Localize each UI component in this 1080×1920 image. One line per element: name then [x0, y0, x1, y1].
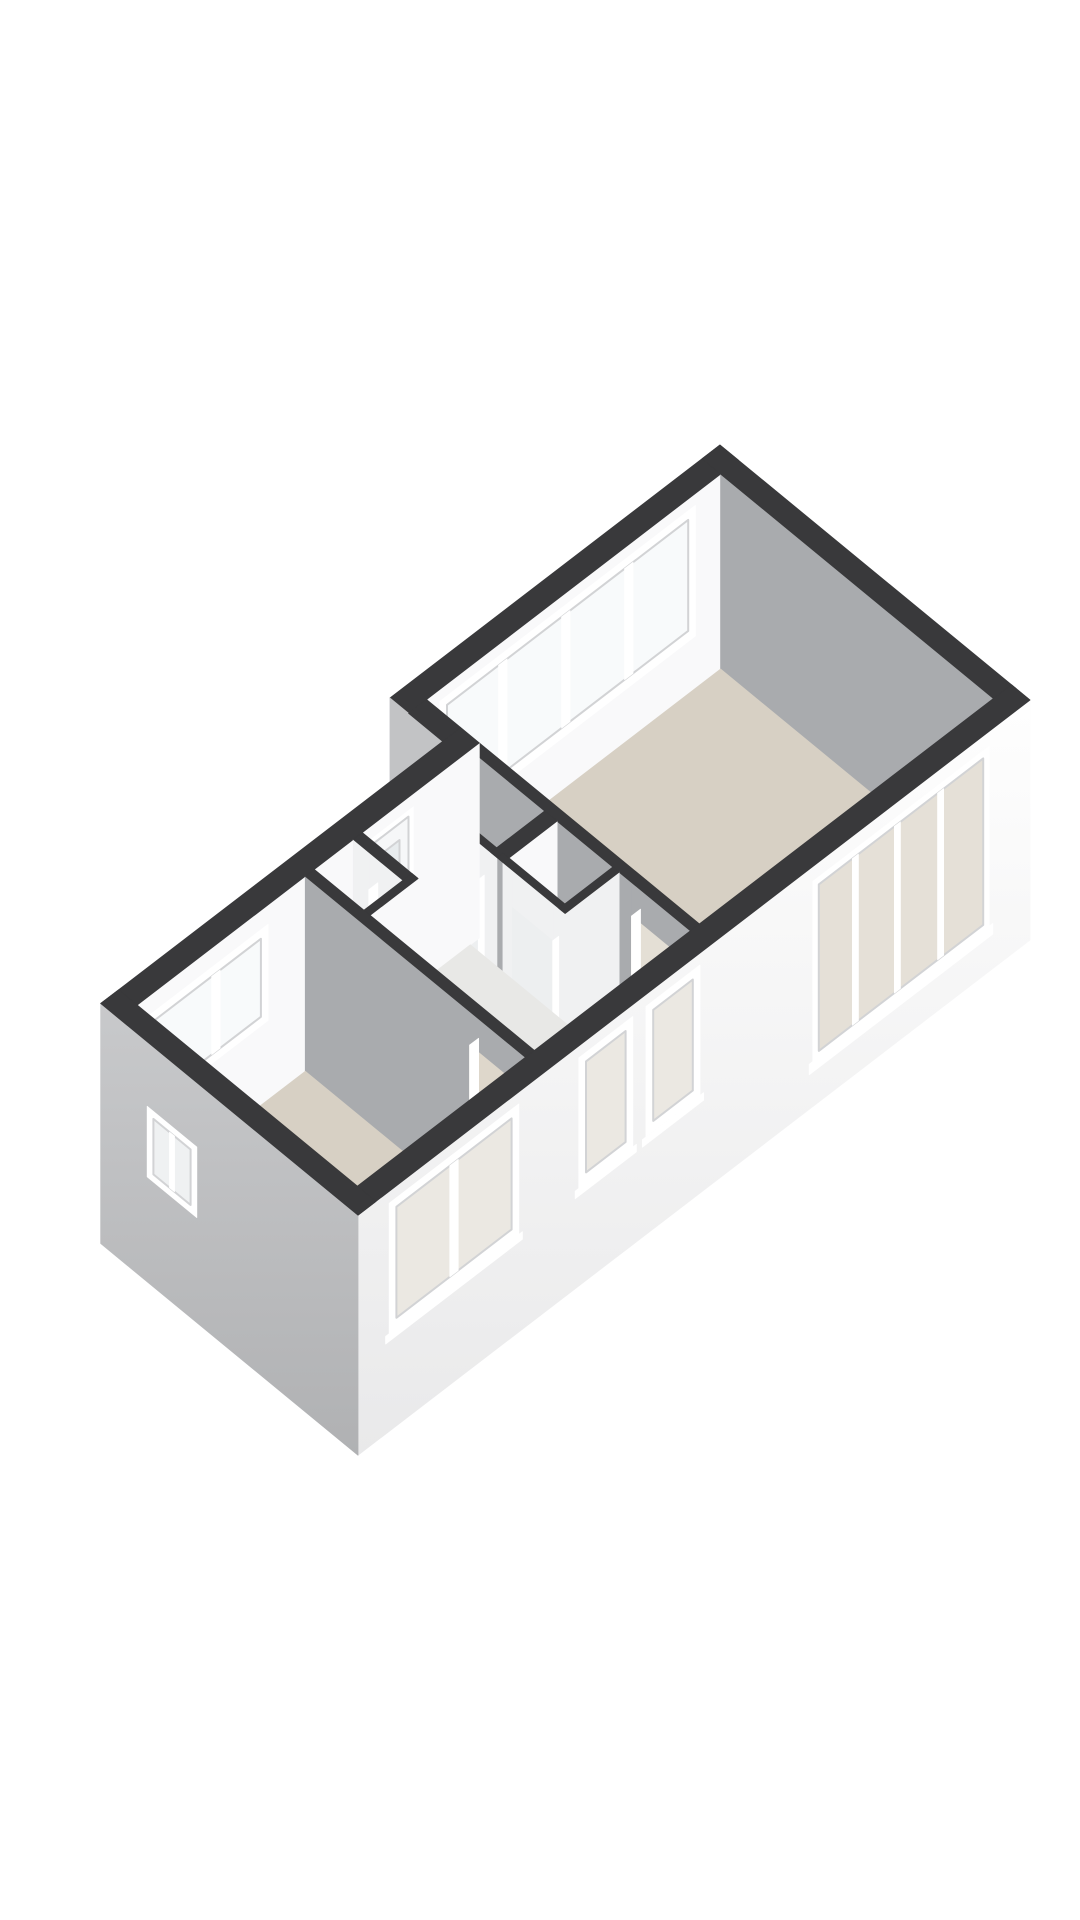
sliding-door-mullion — [894, 822, 900, 993]
floorplan-3d-render — [0, 0, 1080, 1920]
living-nw-window-mullion — [562, 611, 570, 728]
living-nw-window-mullion — [499, 659, 507, 776]
sliding-door-mullion — [852, 854, 858, 1025]
floorplan-page — [0, 0, 1080, 1920]
living-nw-window-mullion — [625, 562, 633, 679]
sliding-door-mullion — [938, 789, 944, 960]
bedroom-front-window-mullion — [450, 1159, 458, 1276]
bedroom-nw-window-mullion — [212, 970, 220, 1054]
sw-window-mullion — [170, 1132, 175, 1192]
